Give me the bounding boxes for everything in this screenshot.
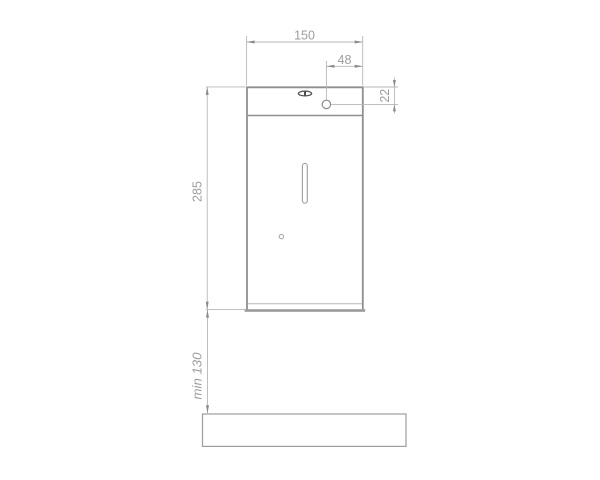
svg-text:min 130: min 130 [190,352,205,400]
svg-text:48: 48 [338,53,352,67]
svg-text:22: 22 [378,89,392,103]
svg-text:285: 285 [191,181,205,202]
svg-text:150: 150 [294,29,315,43]
